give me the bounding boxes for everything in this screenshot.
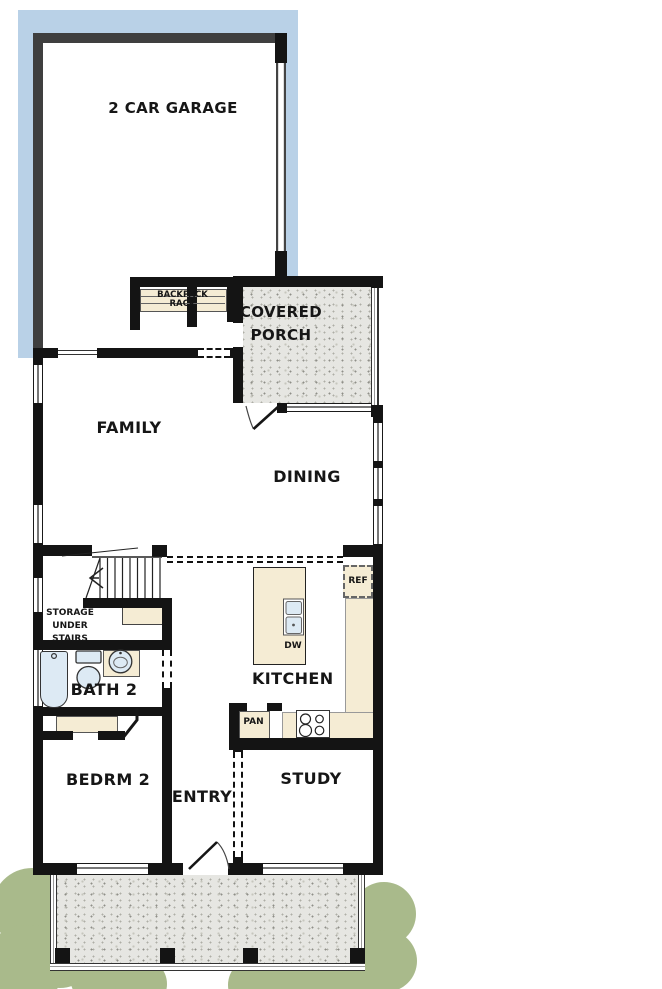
entry-label: ENTRY (162, 787, 242, 806)
bath2-label: BATH 2 (64, 680, 144, 699)
porch-post (350, 948, 365, 963)
wall (97, 348, 198, 358)
ceiling-break (167, 561, 343, 563)
wall (33, 33, 43, 357)
wall (162, 688, 172, 707)
wall (130, 287, 140, 330)
cased-opening (198, 348, 230, 358)
wall (33, 33, 287, 43)
wall (33, 863, 77, 875)
wall (229, 738, 383, 750)
porch-post (371, 405, 383, 417)
window (373, 423, 383, 461)
backpack-rack-label-line2: RACK (140, 299, 225, 309)
wall (228, 863, 263, 875)
wall (343, 545, 383, 557)
wall (98, 731, 125, 740)
bath-door-opening (162, 650, 172, 688)
dining-label: DINING (267, 467, 347, 486)
storage-label-line3: STAIRS (38, 634, 102, 644)
window (33, 505, 43, 543)
wall (275, 33, 287, 63)
step (58, 348, 97, 358)
floor-plan: 2 CAR GARAGE COVERED PORCH FAMILY DINING… (0, 0, 662, 989)
study-label: STUDY (271, 769, 351, 788)
garage-door (276, 63, 286, 251)
kitchen-label: KITCHEN (252, 669, 332, 688)
family-label: FAMILY (89, 418, 169, 437)
ref-label: REF (343, 576, 373, 586)
wall (33, 707, 172, 716)
garage-label: 2 CAR GARAGE (83, 99, 263, 117)
wall (230, 348, 243, 358)
wall (33, 403, 43, 505)
covered-porch-label-line2: PORCH (238, 326, 324, 344)
wall (33, 731, 73, 740)
porch-edge (50, 963, 365, 971)
kitchen-counter (345, 598, 375, 714)
storage-label-line2: UNDER (38, 621, 102, 631)
window (33, 578, 43, 612)
front-door (189, 842, 229, 869)
wall (162, 598, 172, 650)
wall (233, 276, 383, 286)
door-jamb (277, 403, 287, 413)
porch-post (243, 948, 258, 963)
window (287, 403, 371, 412)
bath-vanity (103, 650, 140, 677)
stove (296, 710, 330, 738)
wall (373, 544, 383, 875)
dw-label: DW (280, 641, 306, 651)
ceiling-break (167, 556, 343, 558)
wall (373, 461, 383, 468)
stair-base (83, 598, 165, 608)
window (373, 468, 383, 499)
porch-dining-door (246, 406, 279, 429)
window (77, 863, 148, 875)
front-porch-floor (57, 875, 358, 963)
bedrm2-label: BEDRM 2 (66, 770, 146, 789)
porch-post (160, 948, 175, 963)
storage-label-line1: STORAGE (38, 608, 102, 618)
window (33, 365, 43, 403)
porch-edge (371, 288, 379, 405)
wall (373, 499, 383, 506)
window (263, 863, 343, 875)
wall (148, 863, 183, 875)
pan-label: PAN (239, 717, 268, 727)
wall (33, 357, 43, 365)
wall (152, 545, 167, 557)
wall (343, 863, 383, 875)
wall (267, 703, 282, 711)
stair-direction-arrow (90, 568, 103, 588)
window (373, 506, 383, 544)
porch-post (55, 948, 70, 963)
covered-porch-label-line1: COVERED (238, 303, 324, 321)
wall (33, 545, 92, 556)
